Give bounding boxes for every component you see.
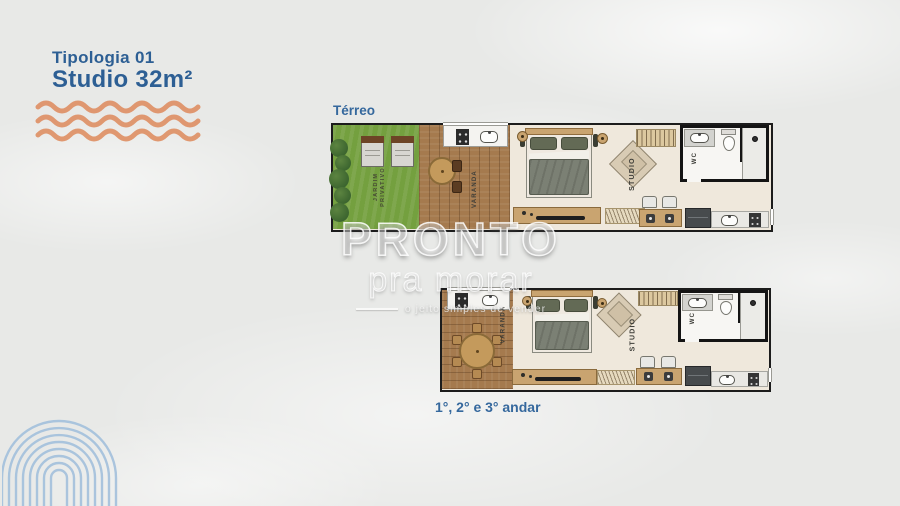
decor-item	[530, 213, 533, 216]
kitchen-counter	[711, 371, 768, 387]
kitchen-sink-icon	[721, 215, 738, 226]
window	[768, 368, 772, 382]
floor-plan-terreo: JARDIM PRIVATIVO VARANDA STUDIO	[331, 123, 773, 232]
floor-label-andares: 1°, 2° e 3° andar	[435, 399, 541, 415]
toilet-icon	[723, 136, 735, 151]
monitor-icon	[665, 214, 674, 223]
desk-chair	[662, 196, 677, 208]
dining-chair	[472, 323, 482, 333]
stove-icon	[456, 129, 469, 145]
decor-item	[529, 375, 532, 378]
bedside-lamp	[522, 296, 532, 306]
page-background: Tipologia 01 Studio 32m² Térreo JARDIM P…	[0, 0, 900, 506]
deck-chair	[452, 181, 462, 193]
shrub-icon	[334, 187, 351, 204]
tv-sideboard	[512, 369, 597, 385]
pillow	[530, 137, 557, 150]
pillow	[561, 137, 588, 150]
decor-item	[521, 373, 525, 377]
monitor-icon	[664, 372, 673, 381]
pillow	[564, 299, 588, 312]
sink-icon	[480, 131, 498, 143]
toilet-icon	[720, 301, 732, 315]
desk-chair	[661, 356, 676, 368]
gourmet-counter	[443, 125, 508, 147]
kitchen-stove-icon	[749, 213, 761, 227]
window	[447, 287, 510, 291]
floor-label-terreo: Térreo	[333, 103, 375, 118]
bed-headboard	[525, 128, 593, 135]
kitchen-stove-icon	[748, 373, 759, 386]
watermark-dash	[356, 308, 398, 310]
sun-lounger	[391, 136, 414, 167]
fingerprint-icon	[2, 406, 122, 506]
work-desk	[639, 209, 682, 227]
kitchen-sink-icon	[719, 375, 735, 385]
pillow	[536, 299, 560, 312]
shower-area	[740, 293, 765, 339]
tv-icon	[535, 377, 581, 381]
desk-chair	[640, 356, 655, 368]
room-label-wc: WC	[687, 298, 699, 338]
floor-plan-andares: VARANDA STUDIO	[440, 288, 771, 392]
bathroom-wc: WC	[680, 125, 769, 182]
tv-sideboard	[513, 207, 601, 224]
clothes-rack	[597, 370, 635, 385]
deck-chair	[452, 160, 462, 172]
room-label-jardim: JARDIM PRIVATIVO	[370, 158, 390, 216]
bookshelf	[638, 291, 678, 306]
wave-decoration-icon	[33, 98, 203, 144]
room-label-studio: STUDIO	[626, 144, 640, 204]
shrub-icon	[329, 169, 349, 189]
fridge	[685, 208, 711, 228]
typology-subtitle: Tipologia 01	[52, 48, 154, 68]
bedside-lamp	[517, 131, 528, 142]
bathroom-wc: WC	[678, 290, 768, 342]
bed-blanket	[529, 159, 589, 195]
wc-door-opening	[687, 178, 701, 182]
double-bed	[526, 128, 592, 198]
decor-item	[522, 211, 526, 215]
desk-chair	[642, 196, 657, 208]
page-title: Studio 32m²	[52, 66, 193, 94]
toilet-tank-icon	[718, 294, 733, 300]
bookshelf	[636, 129, 676, 147]
wc-door-opening	[685, 338, 699, 342]
dining-table	[459, 333, 495, 369]
room-label-wc: WC	[689, 138, 701, 178]
shower-head-icon	[752, 136, 758, 142]
window	[443, 122, 508, 126]
bed-blanket	[535, 321, 589, 350]
shrub-icon	[330, 203, 349, 222]
dining-chair	[492, 357, 502, 367]
work-desk	[636, 368, 682, 385]
double-bed	[532, 290, 592, 353]
dining-chair	[472, 369, 482, 379]
room-label-studio: STUDIO	[627, 305, 640, 365]
kitchen-counter	[711, 211, 769, 228]
monitor-icon	[646, 214, 655, 223]
shower-area	[742, 128, 766, 179]
fridge	[685, 366, 711, 386]
shower-head-icon	[750, 300, 756, 306]
room-label-varanda: VARANDA	[468, 159, 482, 219]
sink-icon	[482, 295, 498, 306]
room-label-varanda: VARANDA	[498, 295, 511, 355]
tv-icon	[536, 216, 584, 220]
toilet-tank-icon	[721, 129, 736, 135]
bed-headboard	[531, 290, 593, 297]
shrub-icon	[330, 139, 348, 157]
stove-icon	[455, 293, 468, 308]
window	[770, 209, 774, 225]
bedside-lamp	[597, 133, 608, 144]
monitor-icon	[644, 372, 653, 381]
